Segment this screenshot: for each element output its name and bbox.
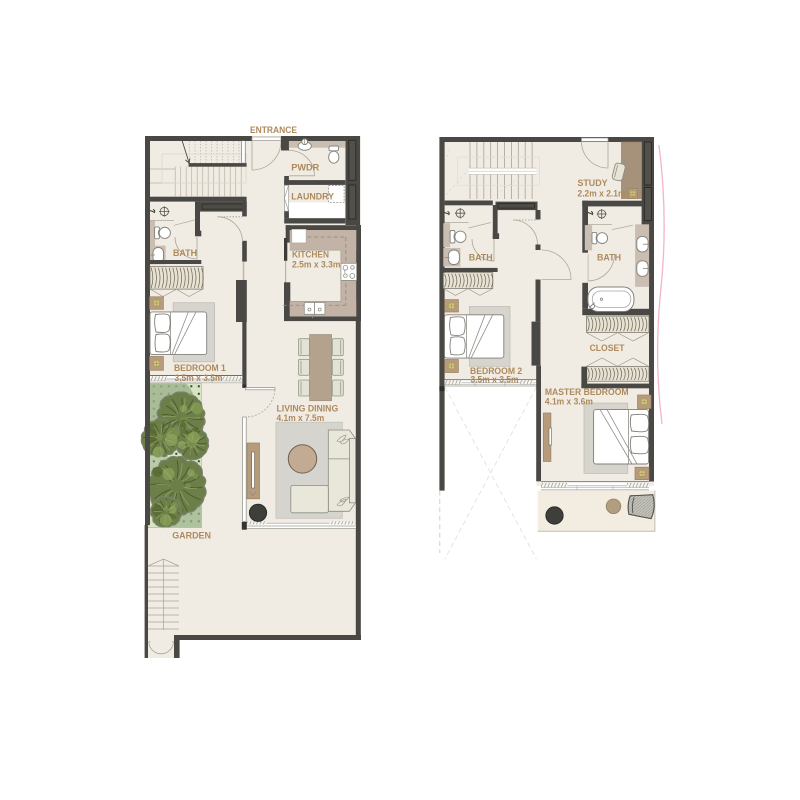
svg-text:ENTRANCE: ENTRANCE bbox=[250, 125, 298, 136]
svg-text:2.5m x 3.3m: 2.5m x 3.3m bbox=[292, 259, 341, 270]
svg-text:4.1m x 7.5m: 4.1m x 7.5m bbox=[277, 413, 325, 424]
svg-text:3.5m x 3.5m: 3.5m x 3.5m bbox=[471, 375, 519, 386]
svg-text:BATH: BATH bbox=[173, 248, 197, 259]
svg-text:2.2m x 2.1m: 2.2m x 2.1m bbox=[578, 188, 626, 199]
svg-text:3.5m x 3.5m: 3.5m x 3.5m bbox=[175, 373, 223, 384]
svg-text:GARDEN: GARDEN bbox=[172, 531, 211, 542]
svg-text:CLOSET: CLOSET bbox=[590, 343, 625, 354]
svg-text:LAUNDRY: LAUNDRY bbox=[291, 192, 334, 203]
svg-text:BATH: BATH bbox=[597, 253, 621, 264]
svg-text:PWDR: PWDR bbox=[291, 163, 319, 174]
svg-text:BATH: BATH bbox=[469, 252, 493, 263]
svg-text:4.1m x 3.6m: 4.1m x 3.6m bbox=[545, 396, 593, 407]
